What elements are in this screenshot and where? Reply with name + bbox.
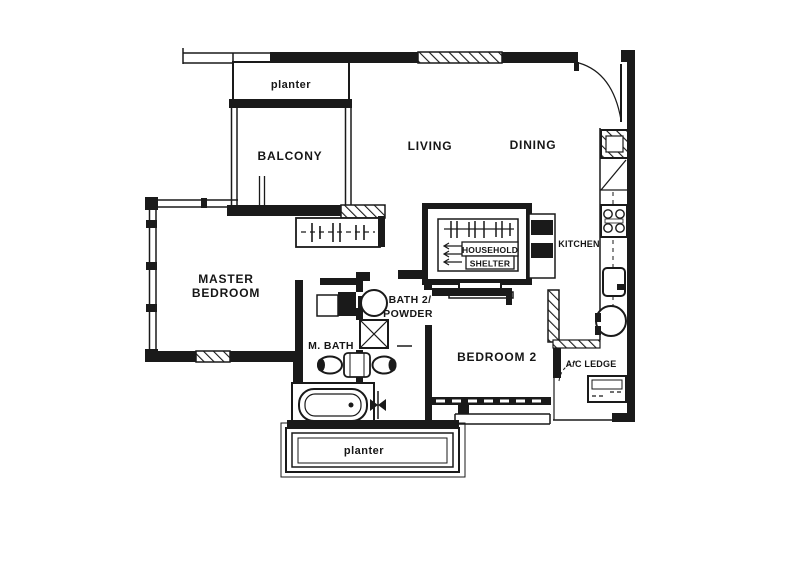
- oven-icon: [603, 268, 625, 296]
- master-toilet-icon: [317, 357, 342, 374]
- bath2-powder-label-1: BATH 2/: [389, 294, 432, 306]
- shelter-arrow-icons: [444, 243, 462, 265]
- household-shelter-label-1: HOUSEHOLD: [462, 245, 518, 255]
- household-shelter-label-2: SHELTER: [470, 259, 510, 269]
- master-bedroom-label-1: MASTER: [198, 272, 253, 286]
- floor-plan: planter BALCONY LIVING DINING KITCHEN HO…: [0, 0, 800, 566]
- kitchen-cabinet-icon: [529, 214, 555, 278]
- floor-plan-svg: planter BALCONY LIVING DINING KITCHEN HO…: [0, 0, 800, 566]
- bathtub-icon: [292, 383, 374, 425]
- ac-unit-icon: [588, 376, 626, 402]
- entrance-door-swing-icon: [574, 62, 621, 122]
- toilet-cistern-icon: [344, 353, 370, 377]
- balcony-label: BALCONY: [258, 149, 323, 163]
- bay-window-icon: [455, 414, 550, 424]
- planter-top-label: planter: [271, 79, 311, 91]
- stove-icon: [601, 205, 627, 237]
- kitchen-sink-icon: [601, 130, 628, 158]
- master-bedroom-label-2: BEDROOM: [192, 286, 260, 300]
- kitchen-label: KITCHEN: [558, 239, 599, 249]
- bath-top-walls: [320, 270, 426, 285]
- bath2-powder-label-2: POWDER: [383, 308, 433, 320]
- master-bath-label: M. BATH: [308, 340, 354, 352]
- ac-ledge-label: A/C LEDGE: [566, 359, 617, 369]
- wardrobe-icon: [296, 216, 385, 247]
- planter-bottom-label: planter: [344, 445, 384, 457]
- powder-toilet-icon: [373, 357, 397, 374]
- washer-icon: [595, 306, 626, 336]
- living-door-jamb: [260, 176, 265, 205]
- living-label: LIVING: [408, 139, 453, 153]
- dining-label: DINING: [510, 138, 557, 152]
- shower-icon: [360, 320, 388, 348]
- bedroom2-label: BEDROOM 2: [457, 350, 537, 364]
